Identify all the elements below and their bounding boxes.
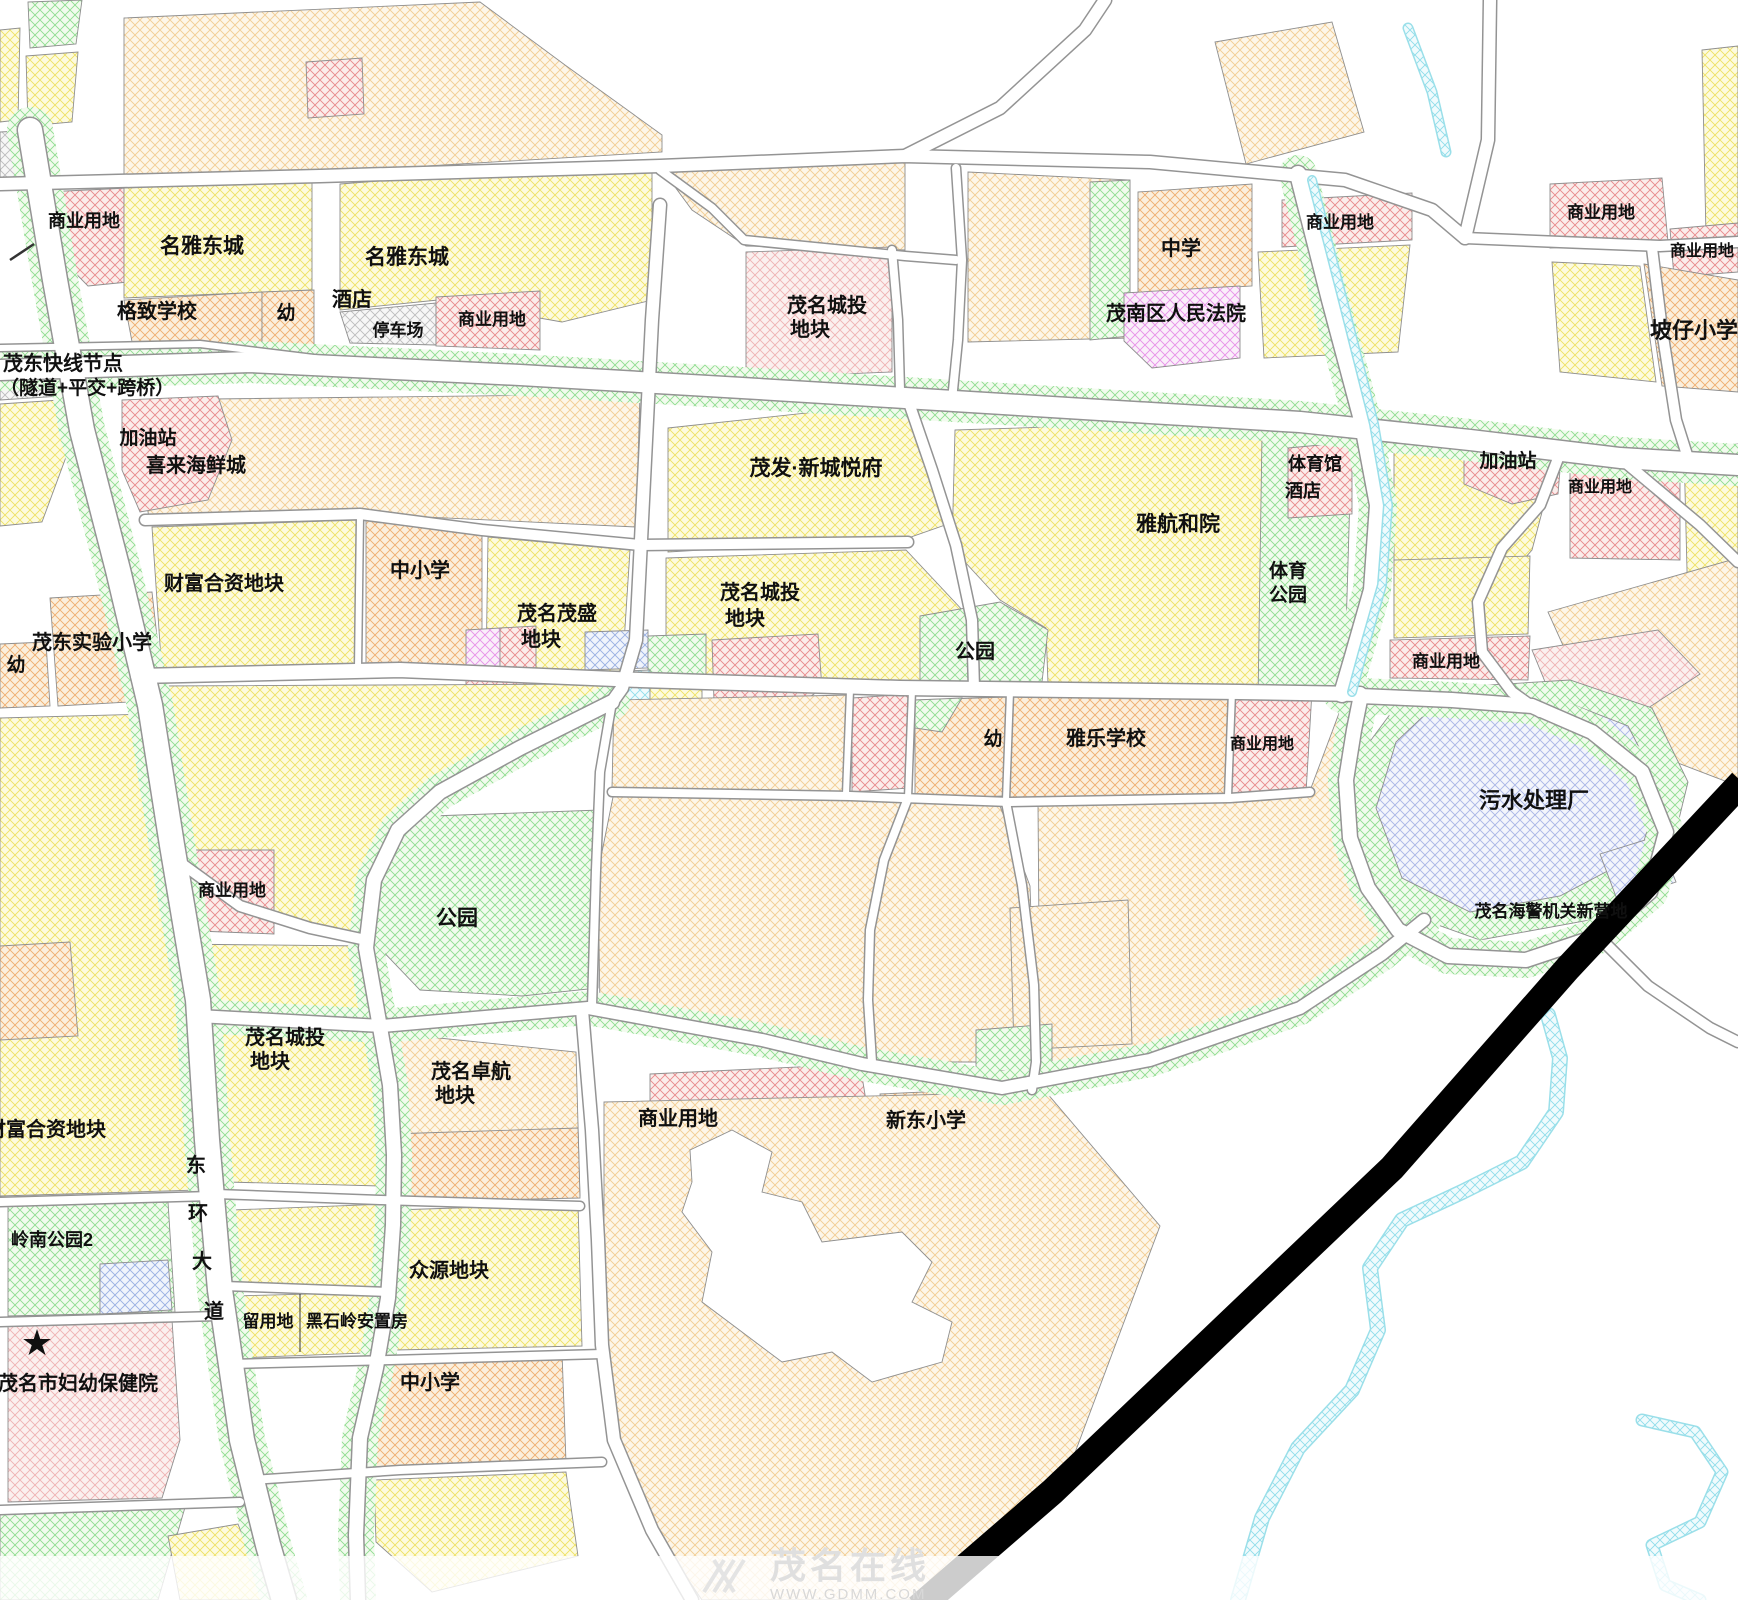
- parcel-yellow-b1: [232, 1204, 388, 1290]
- parcel-label-chengtou-plot-2: 茂名城投: [720, 580, 800, 604]
- parcel-label-gas-seafood: 喜来海鲜城: [146, 453, 246, 477]
- parcel-label-chengtou-plot-3: 地块: [250, 1050, 291, 1073]
- watermark-logo-icon: [700, 1554, 756, 1596]
- parcel-row-red-w: [852, 694, 912, 792]
- parcel-label-maosheng-plot: 地块: [521, 628, 562, 651]
- parcel-orange-b1: [390, 1128, 580, 1202]
- parcel-label-sports-park: 体育: [1269, 559, 1307, 582]
- river-stream-topright: [1408, 28, 1446, 152]
- road-label: 茂东快线节点: [3, 351, 123, 375]
- road-row-v2: [908, 690, 912, 798]
- parcel-label-commercial-e: 商业用地: [1568, 477, 1632, 496]
- parcel-label-commercial-parking: 商业用地: [458, 309, 526, 329]
- parcel-label-mingya-east-2: 名雅东城: [365, 245, 449, 269]
- parcel-label-liuyongdi-block: 黑石岭安置房: [306, 1311, 408, 1331]
- parcel-label-sports-park: 公园: [1269, 584, 1307, 606]
- parcel-label-middle-school: 中学: [1161, 236, 1201, 260]
- parcel-label-mingya-east-2: 酒店: [332, 288, 372, 311]
- road-casing-top-branch-ne: [905, 0, 1105, 156]
- parcel-label-gas-seafood: 加油站: [118, 426, 176, 449]
- star-marker: ★: [21, 1322, 53, 1363]
- parcel-blue-inset: [100, 1260, 172, 1314]
- road-v2b-road: [358, 516, 360, 668]
- parcel-label-parking-lot: 停车场: [373, 320, 424, 340]
- parcel-label-commercial-ne3: 商业用地: [1670, 241, 1734, 260]
- road-row-v1: [846, 690, 850, 794]
- parcel-top-strip-commercial: [306, 58, 364, 118]
- parcel-label-south-mid-primary: 中小学: [400, 1370, 460, 1394]
- parcel-label-zhuohang-plot: 地块: [435, 1084, 476, 1107]
- map-canvas: 商业用地名雅东城格致学校幼名雅东城酒店停车场商业用地茂名城投地块中学茂南区人民法…: [0, 0, 1738, 1600]
- road-label: 东: [186, 1153, 206, 1177]
- parcel-label-sewage-plant: 污水处理厂: [1479, 788, 1589, 813]
- parcel-label-chengtou-plot-3: 茂名城投: [245, 1025, 325, 1049]
- parcel-label-gym-hotel: 酒店: [1285, 480, 1321, 501]
- parcel-yellow-above-comm: [1394, 556, 1530, 638]
- parcel-corner-yellow2: [0, 28, 20, 122]
- parcel-label-yahang-heyuan: 雅航和院: [1136, 512, 1220, 536]
- parcel-corner-green: [28, 0, 82, 48]
- parcel-label-park-small: 公园: [955, 640, 995, 663]
- parcel-label-gas-station-e: 加油站: [1478, 449, 1536, 472]
- river-river-main: [1238, 1015, 1560, 1600]
- river-casing-river-main: [1238, 1015, 1560, 1600]
- parcel-label-kindergarten-3: 幼: [6, 653, 25, 676]
- road-j2-north: [1465, 0, 1490, 238]
- parcel-label-commercial-south-big: 商业用地: [638, 1106, 718, 1130]
- parcel-label-maodong-exp-primary: 茂东实验小学: [32, 630, 152, 654]
- parcel-maonan-court: [1124, 286, 1240, 368]
- parcel-label-liuyongdi-block: 留用地: [243, 1311, 294, 1331]
- road-label: 环: [188, 1203, 208, 1225]
- parcel-label-caifu-plot-w: 财富合资地块: [0, 1117, 107, 1141]
- parcel-orange-w2: [0, 942, 78, 1040]
- parcel-label-mid-primary: 中小学: [390, 558, 450, 582]
- parcel-label-maternity-hospital: 茂名市妇幼保健院: [0, 1371, 158, 1395]
- watermark: 茂名在线 WWW.GDMM.COM: [700, 1548, 930, 1600]
- parcel-label-yale-school: 雅乐学校: [1066, 726, 1147, 750]
- parcel-label-gym-hotel: 体育馆: [1288, 453, 1342, 474]
- road-label: 大: [192, 1250, 212, 1273]
- parcel-label-lingnan-park2: 岭南公园2: [11, 1229, 93, 1250]
- parcel-south-mid-primary: [364, 1352, 566, 1468]
- parcel-caifu-plot: [152, 520, 356, 674]
- parcel-label-chengtou-plot-1: 茂名城投: [787, 293, 867, 317]
- parcel-label-chengtou-plot-1: 地块: [790, 318, 831, 341]
- parcel-mid-primary: [366, 520, 482, 670]
- parcel-label-commercial-ne2: 商业用地: [1567, 202, 1635, 222]
- parcel-label-commercial-sw: 商业用地: [198, 880, 266, 900]
- parcel-label-kindergarten-1: 幼: [276, 301, 295, 324]
- watermark-url: WWW.GDMM.COM: [770, 1587, 930, 1600]
- parcel-rightedge-yellow: [1702, 46, 1738, 236]
- watermark-name: 茂名在线: [770, 1548, 930, 1584]
- parcel-top-strip: [124, 2, 662, 184]
- parcel-label-gezhi-school: 格致学校: [117, 299, 198, 323]
- parcel-label-pozai-primary: 坡仔小学: [1650, 318, 1738, 343]
- road-wl3-road: [0, 1502, 240, 1510]
- parcel-yellow-ne-fill: [1552, 262, 1656, 382]
- parcel-label-mingya-east-1: 名雅东城: [160, 234, 244, 258]
- parcel-label-commercial-row-e: 商业用地: [1230, 734, 1294, 753]
- parcel-label-commercial-nw: 商业用地: [48, 210, 120, 231]
- road-label: 道: [204, 1299, 224, 1323]
- road-row-v3: [1006, 692, 1010, 800]
- parcel-label-caifu-plot: 财富合资地块: [164, 571, 285, 595]
- parcel-label-xindong-primary: 新东小学: [886, 1108, 966, 1132]
- parcel-label-maonan-court: 茂南区人民法院: [1106, 301, 1246, 325]
- road-label: （隧道+平交+跨桥）: [0, 376, 174, 399]
- planning-map: 商业用地名雅东城格致学校幼名雅东城酒店停车场商业用地茂名城投地块中学茂南区人民法…: [0, 0, 1738, 1600]
- parcel-label-zhongyuan-plot: 众源地块: [409, 1259, 490, 1282]
- parcel-label-maofa-xincheng: 茂发·新城悦府: [750, 456, 883, 480]
- road-loop-se-road: [1598, 936, 1738, 1042]
- parcel-label-chengtou-plot-2: 地块: [725, 607, 766, 630]
- parcel-label-park-big: 公园: [436, 907, 478, 930]
- parcel-label-commercial-plant-n: 商业用地: [1412, 651, 1480, 671]
- parcel-label-kindergarten-2: 幼: [983, 727, 1002, 750]
- parcel-row-peach-w: [612, 695, 850, 792]
- parcel-topright-peach: [1215, 22, 1364, 164]
- parcel-label-maosheng-plot: 茂名茂盛: [517, 601, 597, 625]
- parcel-label-plant-green-ring: 茂名海警机关新营地: [1475, 901, 1628, 921]
- parcel-label-zhuohang-plot: 茂名卓航: [431, 1059, 511, 1083]
- parcel-label-commercial-ne1: 商业用地: [1306, 212, 1374, 232]
